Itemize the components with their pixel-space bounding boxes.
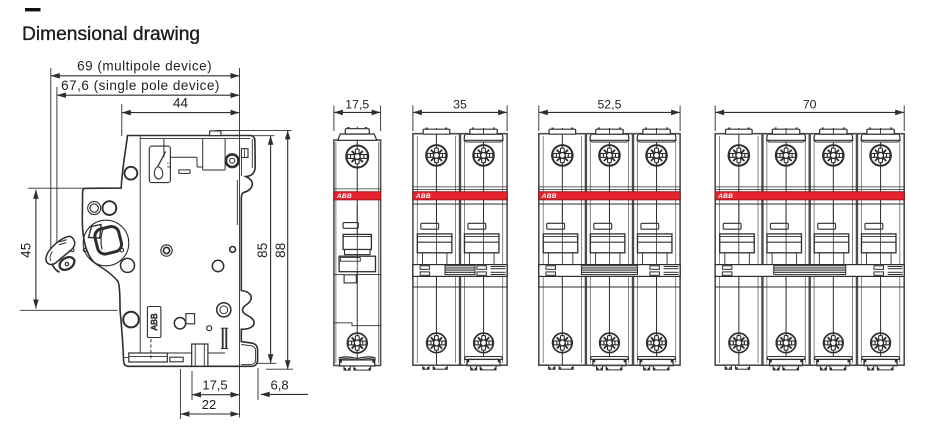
svg-text:88: 88	[273, 243, 288, 258]
svg-text:17,5: 17,5	[202, 378, 227, 393]
svg-text:85: 85	[255, 243, 270, 258]
svg-text:70: 70	[803, 98, 817, 112]
svg-text:ABB: ABB	[717, 193, 733, 200]
svg-text:17,5: 17,5	[345, 98, 369, 112]
svg-text:ABB: ABB	[541, 193, 557, 200]
svg-text:ABB: ABB	[149, 313, 159, 330]
svg-text:ABB: ABB	[336, 193, 352, 200]
svg-text:52,5: 52,5	[597, 98, 621, 112]
svg-text:6,8: 6,8	[271, 377, 289, 392]
svg-text:69 (multipole device): 69 (multipole device)	[77, 59, 212, 74]
svg-text:35: 35	[453, 98, 467, 112]
svg-text:22: 22	[202, 397, 216, 412]
svg-text:Dimensional drawing: Dimensional drawing	[22, 24, 200, 45]
svg-text:ABB: ABB	[415, 193, 431, 200]
svg-text:45: 45	[19, 243, 34, 258]
svg-text:2.8: 2.8	[167, 162, 172, 169]
svg-text:44: 44	[173, 96, 189, 111]
svg-text:67,6 (single pole device): 67,6 (single pole device)	[61, 78, 220, 93]
